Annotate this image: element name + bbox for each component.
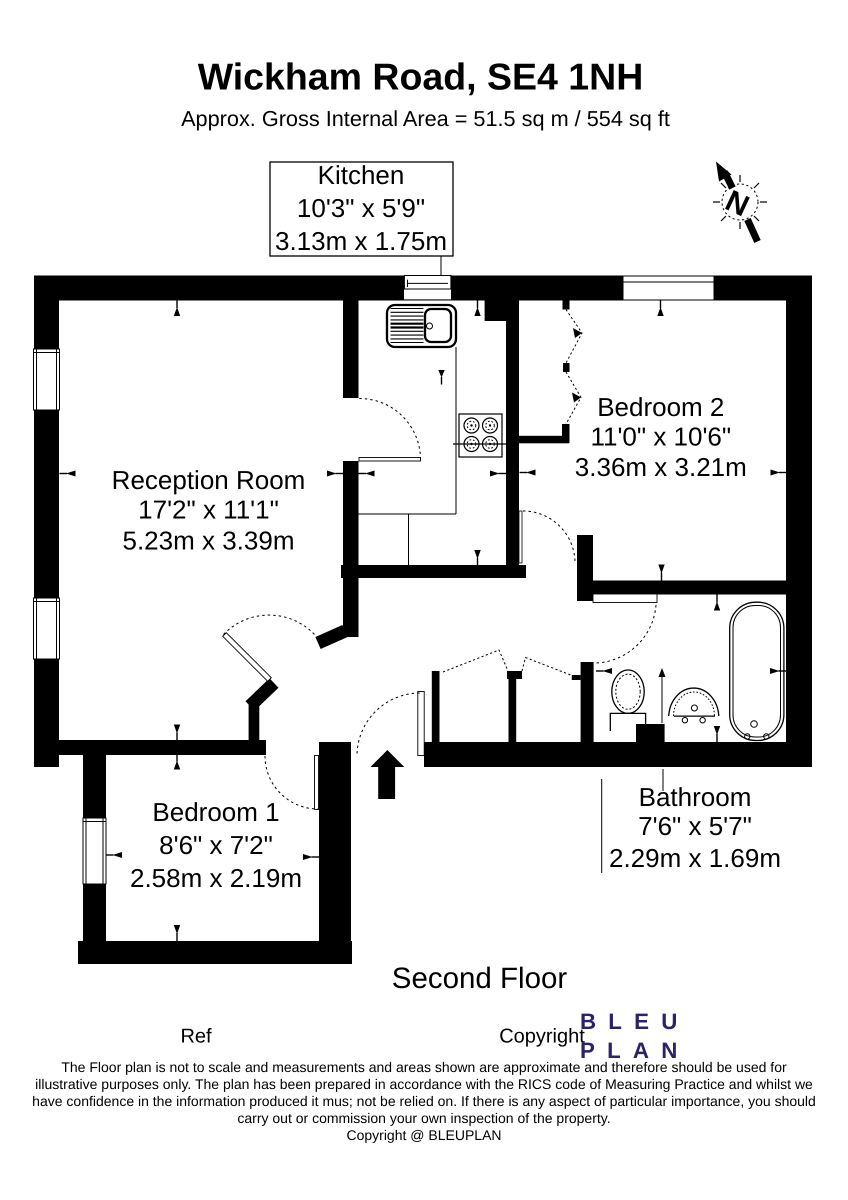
svg-text:Wickham Road, SE4 1NH: Wickham Road, SE4 1NH [198,56,644,98]
svg-text:Bathroom: Bathroom [639,782,752,812]
svg-text:7'6" x 5'7": 7'6" x 5'7" [638,811,752,841]
svg-text:5.23m x 3.39m: 5.23m x 3.39m [123,526,295,556]
svg-text:3.13m x 1.75m: 3.13m x 1.75m [275,226,447,256]
svg-text:Approx. Gross Internal Area =: Approx. Gross Internal Area = 51.5 sq m … [181,106,670,131]
svg-text:10'3" x 5'9": 10'3" x 5'9" [297,193,425,223]
svg-text:BLEU: BLEU [580,1009,690,1034]
svg-text:Reception Room: Reception Room [112,465,306,495]
svg-text:8'6" x 7'2": 8'6" x 7'2" [159,830,273,860]
svg-text:Copyright @ BLEUPLAN: Copyright @ BLEUPLAN [346,1127,501,1143]
svg-text:Bedroom 1: Bedroom 1 [152,797,279,827]
svg-text:Ref: Ref [180,1026,212,1048]
svg-text:carry out or commission your o: carry out or commission your own inspect… [237,1110,610,1126]
svg-text:2.29m x 1.69m: 2.29m x 1.69m [609,843,781,873]
svg-text:11'0" x 10'6": 11'0" x 10'6" [590,422,731,452]
svg-text:The Floor plan is not to scale: The Floor plan is not to scale and measu… [61,1059,787,1075]
svg-text:Kitchen: Kitchen [318,160,405,190]
svg-text:illustrative purposes only. Th: illustrative purposes only. The plan has… [35,1076,813,1092]
svg-text:Copyright: Copyright [499,1026,585,1048]
svg-text:2.58m x 2.19m: 2.58m x 2.19m [130,863,302,893]
svg-text:Second Floor: Second Floor [392,962,568,995]
svg-text:3.36m x 3.21m: 3.36m x 3.21m [575,452,747,482]
svg-text:Bedroom 2: Bedroom 2 [597,392,724,422]
svg-text:17'2" x 11'1": 17'2" x 11'1" [138,495,279,525]
svg-text:have confidence in the informa: have confidence in the information produ… [32,1093,816,1109]
